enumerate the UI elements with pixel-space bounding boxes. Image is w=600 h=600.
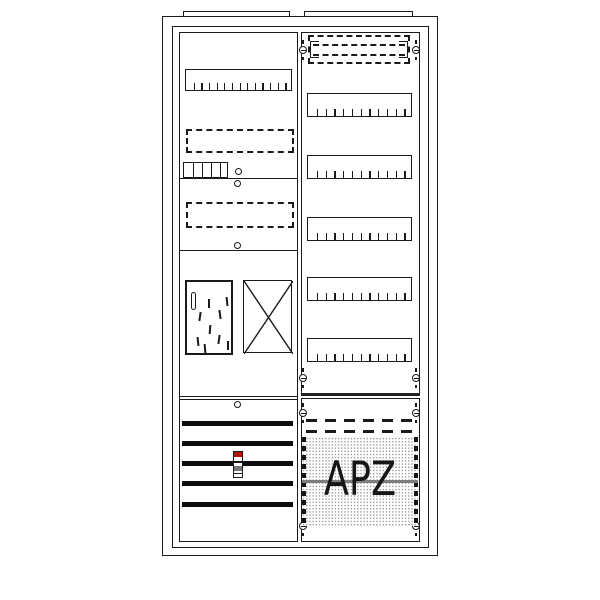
centreline-tick [415,368,416,372]
slotted-screw-icon [299,409,307,417]
bracket-mark [399,41,408,58]
slotted-screw-icon [412,46,420,54]
screw-icon [234,242,241,249]
rail-tick [262,83,263,90]
rail-tick [352,109,353,116]
rail-tick [285,83,286,90]
rail-tick [240,83,241,90]
rail-tick [369,293,370,300]
busbar [182,502,293,507]
screw-icon [234,180,241,187]
rail-tick [194,83,195,90]
rail-tick [326,171,327,178]
rail-tick [361,171,362,178]
device-rail-right [307,155,412,179]
apz-label: APZ [315,456,405,504]
slotted-screw-icon [299,46,307,54]
rail-tick [317,171,318,178]
rail-tick [352,354,353,361]
rail-tick [369,233,370,240]
rail-tick [317,354,318,361]
centreline-tick [302,57,303,61]
centreline-tick [302,368,303,372]
device-rail-right [307,93,412,117]
busbar [182,481,293,486]
rail-tick [396,354,397,361]
rail-tick [378,171,379,178]
rail-tick [326,109,327,116]
screw-slot [301,413,306,414]
rail-tick [334,293,335,300]
rail-tick [396,293,397,300]
rail-tick [387,293,388,300]
meter-texture-mark [208,299,210,308]
rail-tick [387,109,388,116]
rail-tick [361,293,362,300]
rail-tick [387,171,388,178]
reserved-area-dashed [186,202,294,228]
rail-tick [396,109,397,116]
cover-strip-inner-dash [313,54,405,56]
rail-tick [217,83,218,90]
section-divider [179,399,298,400]
rail-tick [378,293,379,300]
bracket-mark [310,41,319,58]
rail-tick [326,354,327,361]
device-rail-left [185,69,292,91]
terminal-cell-divider [202,163,203,177]
rail-tick [317,233,318,240]
rail-tick [404,171,405,178]
rail-tick [396,171,397,178]
terminal-cell-divider [220,163,221,177]
rail-tick [404,354,405,361]
rail-tick [396,233,397,240]
rail-tick [334,233,335,240]
rail-tick [232,83,233,90]
cover-dashed-line [306,419,414,422]
rail-tick [317,109,318,116]
section-divider [179,178,298,179]
rail-tick [255,83,256,90]
rail-tick [378,233,379,240]
rail-tick [361,233,362,240]
busbar [182,441,293,446]
rail-tick [343,293,344,300]
rail-tick [343,233,344,240]
reserved-space-crossed [243,280,292,353]
rail-tick [343,109,344,116]
field-divider [301,393,420,396]
rail-tick [378,109,379,116]
rail-tick [352,233,353,240]
rail-tick [317,293,318,300]
centreline-tick [302,533,303,537]
sealable-terminal-device [233,451,243,478]
section-divider [179,396,298,397]
screw-slot [414,50,419,51]
x-cross-icon [244,281,293,354]
rail-tick [278,83,279,90]
rail-tick [247,83,248,90]
centreline-tick [415,40,416,44]
screw-slot [414,378,419,379]
slotted-screw-icon [299,374,307,382]
centreline-tick [302,420,303,424]
centreline-tick [415,420,416,424]
centreline-tick [302,40,303,44]
rail-tick [404,293,405,300]
screw-slot [414,413,419,414]
section-divider [179,250,298,251]
rail-tick [334,354,335,361]
centreline-tick [415,385,416,389]
device-rail-right [307,338,412,362]
diagram-layer [0,0,600,600]
rail-tick [334,171,335,178]
screw-slot [301,378,306,379]
rail-tick [343,354,344,361]
centreline-tick [415,403,416,407]
rail-tick [270,83,271,90]
screw-icon [234,401,241,408]
meter-cabinet-diagram: APZ [0,0,600,600]
centreline-tick [415,533,416,537]
rail-tick [378,354,379,361]
meter-texture-mark [227,341,229,350]
rail-tick [404,233,405,240]
screw-icon [235,168,242,175]
meter-seal-slot [191,292,196,310]
device-segment [234,474,242,478]
device-rail-right [307,217,412,241]
rail-tick [334,109,335,116]
rail-tick [361,354,362,361]
terminal-cell-divider [211,163,212,177]
screw-slot [301,50,306,51]
cover-dashed-line [306,430,414,433]
rail-tick [361,109,362,116]
rail-tick [369,354,370,361]
rail-tick [343,171,344,178]
cover-strip-inner-dash [313,44,405,46]
reserved-area-dashed [186,129,294,153]
busbar [182,421,293,426]
rail-tick [352,171,353,178]
slotted-screw-icon [412,409,420,417]
terminal-cell-divider [193,163,194,177]
rail-tick [387,354,388,361]
rail-tick [224,83,225,90]
rail-tick [326,293,327,300]
terminal-strip [183,162,228,178]
rail-tick [352,293,353,300]
device-rail-right [307,277,412,301]
slotted-screw-icon [412,374,420,382]
rail-tick [404,109,405,116]
rail-tick [387,233,388,240]
rail-tick [369,171,370,178]
rail-tick [369,109,370,116]
rail-tick [209,83,210,90]
centreline-tick [415,57,416,61]
rail-tick [326,233,327,240]
cover-strip-dashed [308,35,410,64]
centreline-tick [302,385,303,389]
centreline-tick [302,403,303,407]
rail-tick [201,83,202,90]
